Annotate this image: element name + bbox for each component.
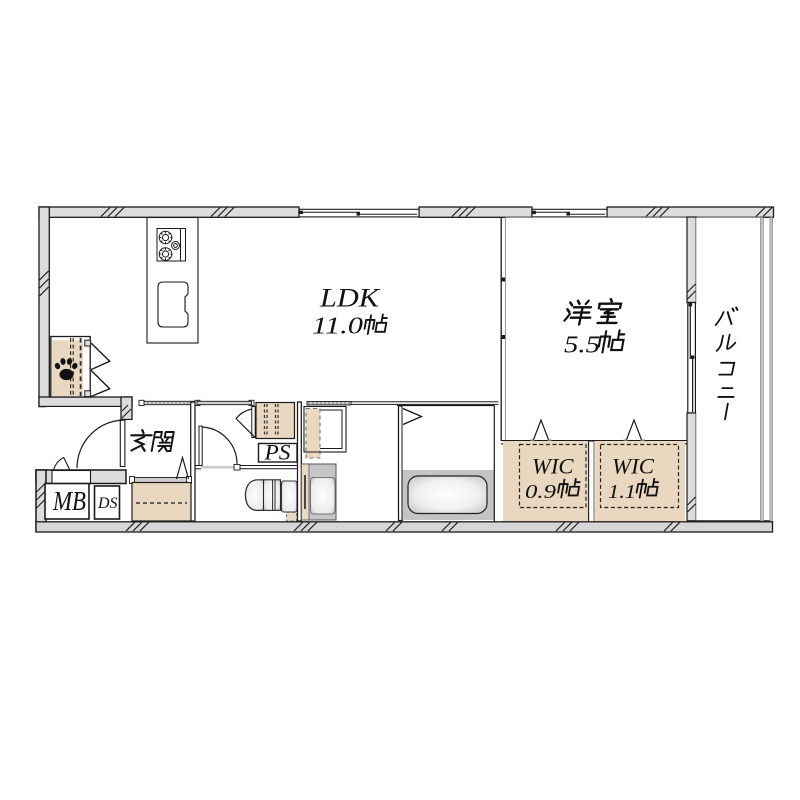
svg-text:WIC: WIC [532,454,574,479]
svg-text:0.9: 0.9 [525,481,556,503]
svg-text:1.1: 1.1 [608,481,636,503]
svg-text:5.5: 5.5 [564,333,600,359]
svg-text:PS: PS [263,440,290,465]
svg-text:MB: MB [52,486,86,516]
svg-text:11.0: 11.0 [312,314,363,340]
svg-text:DS: DS [97,495,117,512]
svg-text:WIC: WIC [612,454,655,479]
svg-text:LDK: LDK [319,284,381,313]
